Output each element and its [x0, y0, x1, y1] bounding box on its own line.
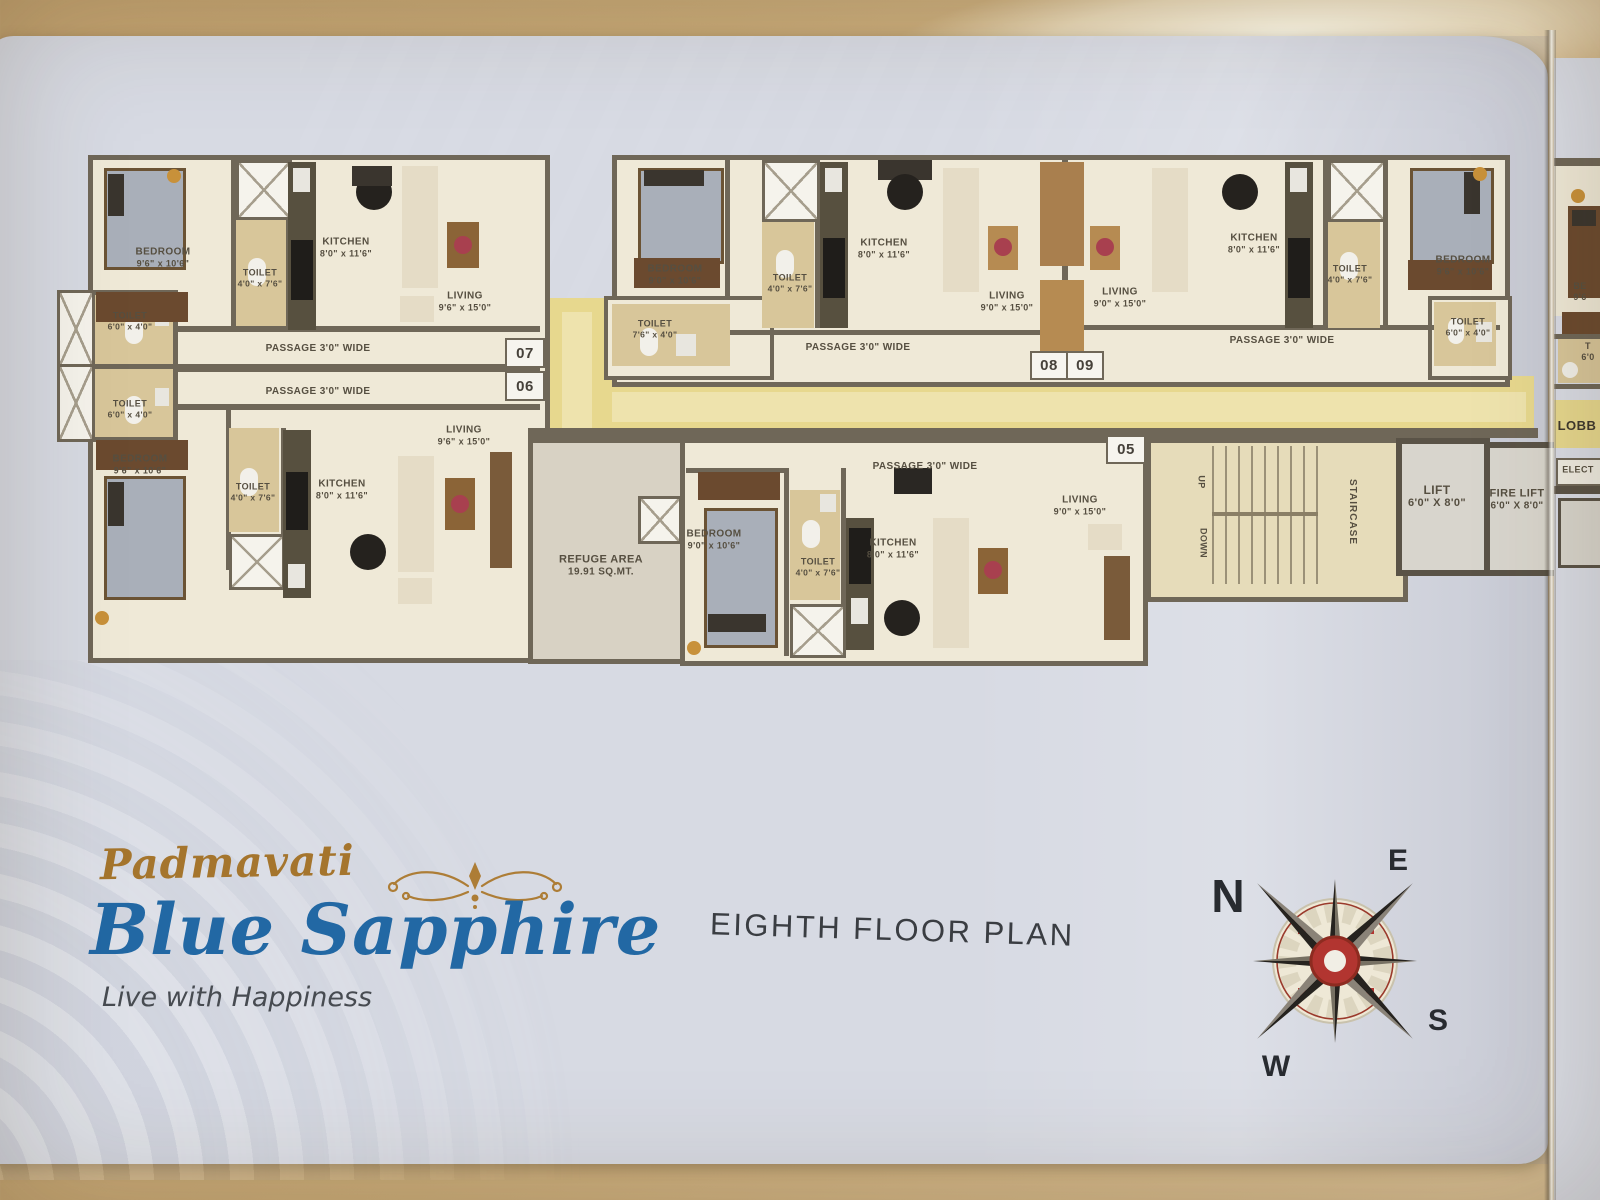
photo-of-brochure: { "brand": { "pre_title": "Padmavati", "… [0, 0, 1600, 1200]
label-living-08: LIVING9'0" x 15'0" [981, 291, 1034, 314]
toilet-sink [820, 494, 836, 512]
label-bedroom-08: BEDROOM9'0" x 10'6" [647, 264, 702, 287]
stove [823, 238, 845, 298]
bed-pillow [108, 174, 124, 216]
label-kitchen-09: KITCHEN8'0" x 11'6" [1228, 233, 1280, 256]
lamp [167, 169, 181, 183]
unit-badge-09: 09 [1066, 351, 1104, 380]
kitchen-sink [851, 598, 868, 624]
label-passage-07: PASSAGE 3'0" WIDE [266, 343, 371, 355]
armchair [400, 296, 434, 322]
kitchen-sink [293, 168, 310, 192]
sofa [1152, 168, 1188, 292]
stair-landing [1212, 512, 1318, 516]
label-passage-09: PASSAGE 3'0" WIDE [1230, 335, 1335, 347]
wall [178, 326, 540, 332]
lamp [1571, 189, 1585, 203]
duct-shaft [229, 534, 285, 590]
armchair [1088, 524, 1122, 550]
lamp [687, 641, 701, 655]
label-living-06: LIVING9'6" x 15'0" [438, 425, 491, 448]
duct-shaft [790, 604, 846, 658]
flower-pot [1096, 238, 1114, 256]
kitchen-sink [288, 564, 305, 588]
table [350, 534, 386, 570]
lobby-corridor-inner [562, 312, 592, 428]
flower-pot [994, 238, 1012, 256]
label-elect-partial: ELECT [1562, 465, 1594, 476]
unit-badge-05: 05 [1106, 435, 1146, 464]
stove [291, 240, 313, 300]
kitchen-sink [825, 168, 842, 192]
stove [1288, 238, 1310, 298]
toilet-sink [155, 388, 169, 406]
label-toilet-annex-09: TOILET6'0" x 4'0" [1446, 317, 1491, 338]
label-lobby-partial: LOBB [1558, 418, 1597, 434]
label-lift: LIFT6'0" X 8'0" [1408, 483, 1466, 511]
brand-pre-title: Padmavati [100, 836, 355, 889]
bed-pillow [108, 482, 124, 526]
adjacent-page: BE9'6T6'0LOBBELECT [1554, 0, 1600, 1200]
wall [1554, 158, 1600, 166]
label-passage-08: PASSAGE 3'0" WIDE [806, 342, 911, 354]
label-staircase: STAIRCASE [1346, 479, 1358, 545]
label-toilet-left-06: TOILET6'0" x 4'0" [108, 399, 153, 420]
lamp [1473, 167, 1487, 181]
toilet-pot [1562, 362, 1578, 378]
flower-pot [451, 495, 469, 513]
label-bedroom-07: BEDROOM9'6" x 10'6" [135, 247, 190, 270]
wall [1554, 486, 1600, 494]
table [887, 174, 923, 210]
wardrobe [698, 472, 780, 500]
brand-title: Blue Sapphire [90, 888, 661, 971]
label-bedroom-09: BEDROOM9'6" x 10'6" [1435, 255, 1490, 278]
kitchen-sink [1290, 168, 1307, 192]
stove [286, 472, 308, 530]
table [1222, 174, 1258, 210]
duct-shaft [57, 364, 95, 442]
label-toilet-05: TOILET4'0" x 7'6" [796, 557, 841, 578]
wall [725, 160, 730, 300]
label-passage-06: PASSAGE 3'0" WIDE [266, 386, 371, 398]
refuge-area-floor [528, 438, 690, 664]
table [884, 600, 920, 636]
bench [490, 452, 512, 568]
compass-west-label: W [1262, 1050, 1291, 1083]
label-toilet-09: TOILET4'0" x 7'6" [1328, 264, 1373, 285]
wall [1554, 384, 1600, 389]
duct-shaft [762, 160, 820, 222]
wall [178, 404, 540, 410]
bed-pillow [708, 614, 766, 632]
planter [1040, 162, 1084, 266]
brand-tagline: Live with Happiness [102, 982, 372, 1013]
wardrobe [1562, 312, 1600, 334]
duct-shaft [638, 496, 682, 544]
unit-badge-06: 06 [505, 371, 545, 401]
lamp [95, 611, 109, 625]
sofa [402, 166, 438, 288]
label-living-07: LIVING9'6" x 15'0" [439, 291, 492, 314]
label-fire-lift: FIRE LIFT6'0" X 8'0" [1490, 487, 1545, 512]
toilet-sink [676, 334, 696, 356]
label-toilet-partial: T6'0 [1581, 341, 1594, 363]
bench [1104, 556, 1130, 640]
compass-east-label: E [1388, 844, 1408, 877]
duct-shaft [57, 290, 95, 368]
label-kitchen-06: KITCHEN8'0" x 11'6" [316, 479, 368, 502]
label-living-09: LIVING9'0" x 15'0" [1094, 287, 1147, 310]
sofa [943, 168, 979, 292]
flower-pot [984, 561, 1002, 579]
label-bedroom-partial: BE9'6 [1573, 281, 1586, 303]
bed-pillow [644, 170, 704, 186]
label-toilet-left-07: TOILET6'0" x 4'0" [108, 311, 153, 332]
compass-icon: N E S W [1190, 828, 1460, 1098]
label-kitchen-05: KITCHEN8'0" x 11'6" [867, 538, 919, 561]
label-bedroom-06: BEDROOM9'6" x 10'6" [112, 454, 167, 477]
label-toilet-06: TOILET4'0" x 7'6" [231, 482, 276, 503]
label-refuge-area: REFUGE AREA19.91 SQ.MT. [559, 553, 643, 578]
sofa [933, 518, 969, 648]
flower-pot [454, 236, 472, 254]
label-kitchen-07: KITCHEN8'0" x 11'6" [320, 237, 372, 260]
label-toilet-annex-08: TOILET7'6" x 4'0" [633, 319, 678, 340]
duct-shaft [1328, 160, 1386, 222]
label-living-05: LIVING9'0" x 15'0" [1054, 495, 1107, 518]
bed-pillow [1572, 210, 1596, 226]
unit-badge-08: 08 [1030, 351, 1068, 380]
label-toilet-07: TOILET4'0" x 7'6" [238, 268, 283, 289]
compass-south-label: S [1428, 1004, 1448, 1037]
label-bedroom-05: BEDROOM9'0" x 10'6" [686, 529, 741, 552]
label-passage-05: PASSAGE 3'0" WIDE [873, 461, 978, 473]
label-toilet-08: TOILET4'0" x 7'6" [768, 273, 813, 294]
sofa [398, 456, 434, 572]
toilet-pot [802, 520, 820, 548]
lift-shaft-partial [1558, 498, 1600, 568]
armchair [398, 578, 432, 604]
tv-unit [352, 166, 392, 186]
bed [1410, 168, 1494, 264]
lobby-corridor-inner [612, 392, 1526, 422]
label-stair-up: UP [1196, 475, 1207, 488]
compass-north-label: N [1211, 870, 1244, 922]
duct-shaft [236, 160, 292, 220]
label-kitchen-08: KITCHEN8'0" x 11'6" [858, 238, 910, 261]
label-stair-down: DOWN [1198, 528, 1209, 558]
page-fold-edge [1544, 30, 1556, 1200]
unit-badge-07: 07 [505, 338, 545, 368]
wall [784, 468, 789, 656]
bottom-row-top-wall [528, 428, 1538, 438]
